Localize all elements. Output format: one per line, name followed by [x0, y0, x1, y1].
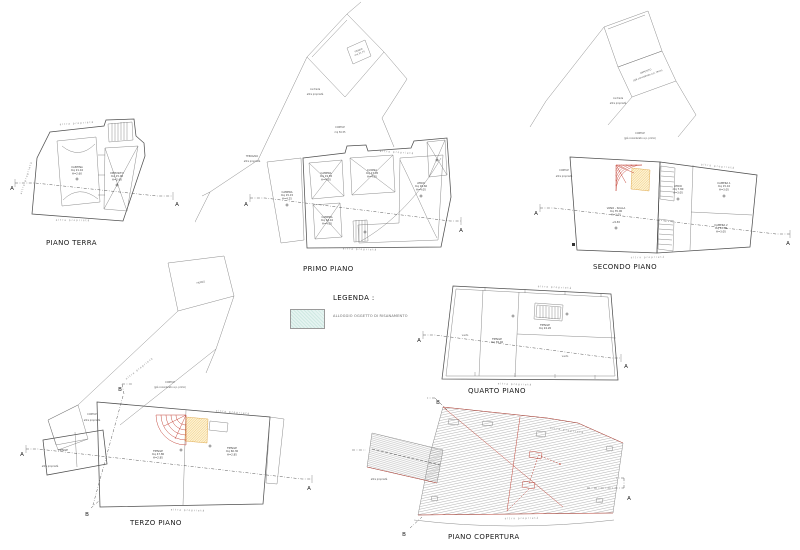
plan-title-secondo-piano: SECONDO PIANO — [593, 263, 657, 271]
room-label: vuoto — [562, 355, 569, 358]
section-letter: A — [307, 486, 311, 492]
room-label: mq 39.40 — [491, 340, 504, 344]
section-line-a: A A — [20, 445, 312, 492]
section-letter: A — [786, 241, 790, 247]
section-letter: B — [118, 387, 122, 393]
room-label: H=4.05 — [416, 187, 426, 191]
stair-demolition — [156, 415, 208, 445]
boundary-text: altra proprietà — [60, 120, 95, 126]
section-letter: B — [436, 400, 440, 406]
boundary-labels: altra proprietà altra proprietà — [343, 149, 415, 252]
legend-swatch-renovation — [290, 309, 325, 329]
section-letter: A — [175, 202, 179, 208]
room-label: H=2.60 — [72, 171, 82, 175]
walls — [442, 286, 618, 380]
ground-floor-outline — [32, 119, 145, 221]
room-label: H=3.05 — [611, 212, 621, 216]
plan-piano-terra: A A altra proprietà altra proprietà altr… — [5, 100, 195, 250]
drain-point — [559, 463, 561, 465]
boundary-text: altra proprietà — [371, 478, 388, 481]
section-line-a: A A — [244, 194, 463, 234]
boundary-labels: altra proprietà altra proprietà — [498, 284, 573, 387]
legend-title: LEGENDA : — [333, 294, 375, 302]
contrada-label: altra proprietà — [307, 93, 324, 96]
main-block — [570, 157, 757, 253]
boundary-text: altra proprietà — [631, 255, 666, 260]
room-labels: vuoto FIENILE mq 39.40 FIENILE mq 24.20 … — [462, 323, 569, 358]
boundary-labels: altra proprietà altra proprietà — [171, 409, 251, 513]
cortile-label: CORTILE — [87, 413, 97, 416]
boundary-text: altra proprietà — [19, 161, 33, 195]
room-labels: FIENILE mq 47.80 H=2.85 FIENILE mq 60.30… — [152, 444, 239, 459]
section-letter: A — [459, 228, 463, 234]
level-cross — [614, 226, 617, 229]
plan-title-piano-terra: PIANO TERRA — [46, 239, 97, 247]
level-cross — [511, 314, 514, 317]
room-label: H=3.05 — [719, 187, 729, 191]
level-cross — [179, 448, 182, 451]
boundary-text: altra proprietà — [498, 381, 533, 386]
room-label: H=2.85 — [227, 452, 237, 456]
level-cross — [363, 230, 366, 233]
boundary-text: altra proprietà — [538, 284, 573, 290]
terrazza-label: TERRAZZA — [246, 155, 259, 158]
cortile-label: CORTILE — [335, 126, 345, 129]
level-cross — [676, 197, 679, 200]
level-label: +9.30 — [612, 220, 620, 224]
room-label: H=4.25 — [282, 196, 292, 200]
boundary-text: altra proprietà — [216, 409, 251, 416]
plan-secondo-piano: DEPOSITO (già considerato a p. terzo) co… — [528, 5, 798, 267]
section-marker-square — [572, 243, 575, 246]
room-label: mq 24.20 — [539, 326, 552, 330]
cortile-label: CORTILE — [635, 132, 645, 135]
apartment-block — [267, 138, 451, 248]
room-label: H=3.05 — [716, 229, 726, 233]
section-letter: A — [10, 186, 14, 192]
contrada-label: altra proprietà — [610, 102, 627, 105]
section-letter: B — [85, 512, 89, 518]
level-cross — [419, 194, 422, 197]
roof — [414, 407, 623, 526]
plan-terzo-piano: FIENILE altra proprietà CORTILE (già con… — [18, 253, 318, 525]
cortile-label: CORTILE — [559, 169, 569, 172]
level-cross — [75, 177, 78, 180]
level-cross — [285, 203, 288, 206]
section-letter: B — [402, 532, 406, 538]
boundary-text: altra proprietà — [56, 218, 91, 223]
section-letter: A — [534, 211, 538, 217]
boundary-text: altra proprietà — [42, 465, 59, 468]
room-label: H=3.05 — [673, 190, 683, 194]
room-labels: CANTINA mq 21.10 H=2.60 DEPOSITO mq 15.0… — [71, 165, 124, 187]
level-cross — [208, 444, 211, 447]
room-label: H=4.05 — [322, 221, 332, 225]
contrada-label: contrada — [310, 88, 321, 91]
section-letter: A — [627, 496, 631, 502]
section-letter: A — [624, 364, 628, 370]
legend-item-label: ALLOGGIO OGGETTO DI RISANAMENTO — [333, 314, 408, 318]
section-letter: A — [244, 202, 248, 208]
boundary-text: altra proprietà — [125, 356, 155, 380]
terrazza-label: altra proprietà — [244, 160, 261, 163]
cortile-label: mq 56.55 — [334, 131, 346, 134]
boundary-text: altra proprietà — [505, 516, 540, 521]
drawing-canvas: A A altra proprietà altra proprietà altr… — [0, 0, 800, 550]
contrada-label: contrada — [613, 97, 624, 100]
plan-primo-piano: FIENILE mq 31.70 TERRAZZA altra propriet… — [195, 0, 485, 272]
cortile-label: altra proprietà — [556, 175, 573, 178]
fienile-label: FIENILE — [196, 280, 206, 285]
cortile-label: CORTILE — [165, 381, 175, 384]
cortile-label: (già considerato a p. primo) — [154, 386, 186, 389]
plan-title-terzo-piano: TERZO PIANO — [130, 519, 182, 527]
annex-roof: altra proprietà — [367, 433, 443, 483]
stair-demolition — [616, 165, 650, 191]
room-labels: VANO - SCALA mq 35.00 H=3.05 +9.30 ATRIO… — [607, 181, 731, 233]
room-label: H=2.60 — [112, 177, 122, 181]
room-label: H=4.05 — [367, 174, 377, 178]
level-cross — [722, 194, 725, 197]
cortile-label: altra proprietà — [84, 419, 101, 422]
room-label: vuoto — [462, 334, 469, 337]
section-letter: A — [20, 452, 24, 458]
section-line-a: A A — [10, 179, 179, 208]
boundary-text: altra proprietà — [701, 162, 736, 170]
section-letter: A — [417, 338, 421, 344]
cortile-label: (già considerato a p. primo) — [624, 137, 656, 140]
plan-piano-copertura: altra proprietà B B A altra proprietà al… — [352, 392, 657, 542]
upper-outline: DEPOSITO (già considerato a p. terzo) co… — [530, 11, 696, 178]
legend: LEGENDA : ALLOGGIO OGGETTO DI RISANAMENT… — [288, 294, 458, 336]
room-label: H=4.05 — [321, 177, 331, 181]
room-label: FIENILE — [58, 448, 68, 452]
plan-title-piano-copertura: PIANO COPERTURA — [448, 533, 519, 541]
level-cross — [565, 312, 568, 315]
boundary-text: altra proprietà — [171, 507, 206, 512]
boundary-text: altra proprietà — [380, 149, 415, 155]
room-label: H=2.85 — [153, 455, 163, 459]
